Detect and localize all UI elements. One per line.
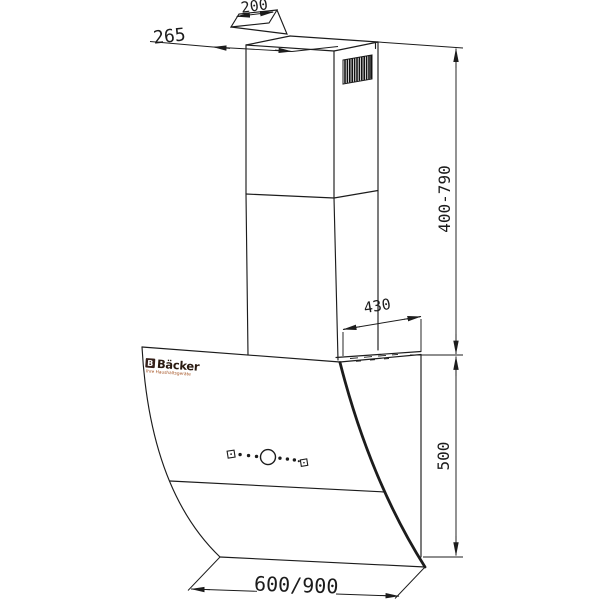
dim-body-width-label: 600/900 <box>254 572 339 599</box>
control-panel <box>227 447 309 466</box>
timer-button-icon <box>300 459 308 467</box>
power-button-icon <box>260 449 276 465</box>
cooker-hood-drawing: 200 265 400-790 500 430 <box>0 0 600 600</box>
dim-height-range-label: 400-790 <box>435 165 454 232</box>
dimension-top-depth: 430 <box>343 295 421 356</box>
chimney-lower-section <box>246 191 378 361</box>
brand-logo-letter: B <box>147 359 154 368</box>
dimension-body-height: 500 <box>423 357 463 558</box>
dim-body-height-label: 500 <box>434 442 453 471</box>
vent-grille-icon <box>343 55 372 84</box>
brand-logo: B Bäcker Ihre Haushaltsgeräte <box>145 356 201 378</box>
speed-indicator-dots-left <box>238 453 258 458</box>
dim-chimney-depth-label: 265 <box>152 24 187 48</box>
light-button-icon <box>227 450 236 459</box>
diagram-canvas: 200 265 400-790 500 430 <box>0 0 600 600</box>
dim-top-depth-label: 430 <box>362 295 392 317</box>
hood-body <box>142 347 425 567</box>
speed-indicator-dots-right <box>278 456 300 462</box>
dimension-body-width: 600/900 <box>188 557 425 599</box>
glass-panel-seam <box>170 481 385 492</box>
chimney-upper-section <box>246 36 378 198</box>
